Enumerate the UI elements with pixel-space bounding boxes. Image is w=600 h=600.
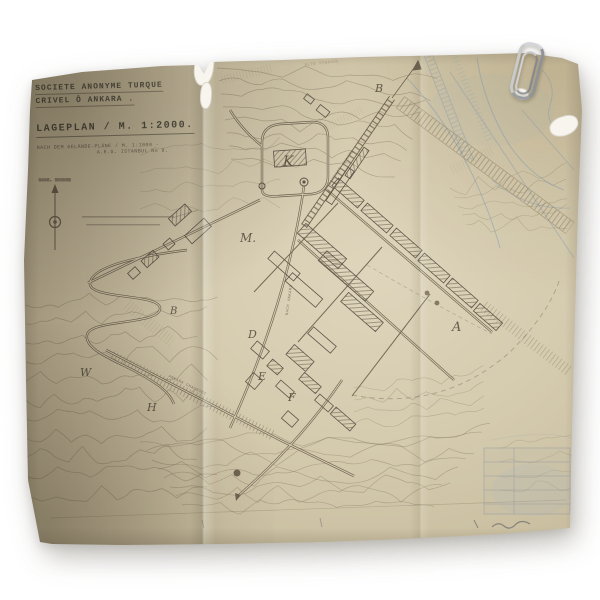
letter-k: K: [282, 154, 295, 170]
plan-title: LAGEPLAN / M. 1:2000.: [36, 120, 194, 138]
letter-m: M.: [239, 231, 256, 245]
paper-sheet-wrap: MAGN. NORDEN: [22, 50, 582, 548]
letter-e: E: [257, 370, 266, 383]
letter-d: D: [247, 328, 257, 341]
paper-sheet: MAGN. NORDEN: [22, 50, 582, 548]
title-block: SOCIETE ANONYME TURQUE CRIVEL Ô ANKARA .…: [35, 80, 194, 157]
company-name-line1: SOCIETE ANONYME TURQUE: [35, 81, 163, 95]
handwritten-note: [202, 518, 530, 528]
company-name-line2: CRIVEL Ô ANKARA .: [35, 94, 134, 108]
north-compass: MAGN. NORDEN: [39, 179, 71, 250]
letter-f: F: [287, 391, 296, 404]
letter-b-west: B: [169, 306, 177, 317]
letter-b-station: B: [374, 82, 383, 95]
compass-label: MAGN. NORDEN: [39, 179, 71, 183]
letter-h: H: [146, 401, 157, 414]
blue-railway-yard-overprint: [407, 50, 574, 440]
photo-stage: MAGN. NORDEN: [0, 0, 600, 600]
letter-a: A: [451, 320, 461, 335]
label-old-road: ALTE STRASSE: [304, 60, 339, 68]
label-south-road: NACH ANKARA: [286, 284, 294, 315]
letter-w: W: [80, 366, 93, 379]
legend-table: [484, 448, 572, 516]
